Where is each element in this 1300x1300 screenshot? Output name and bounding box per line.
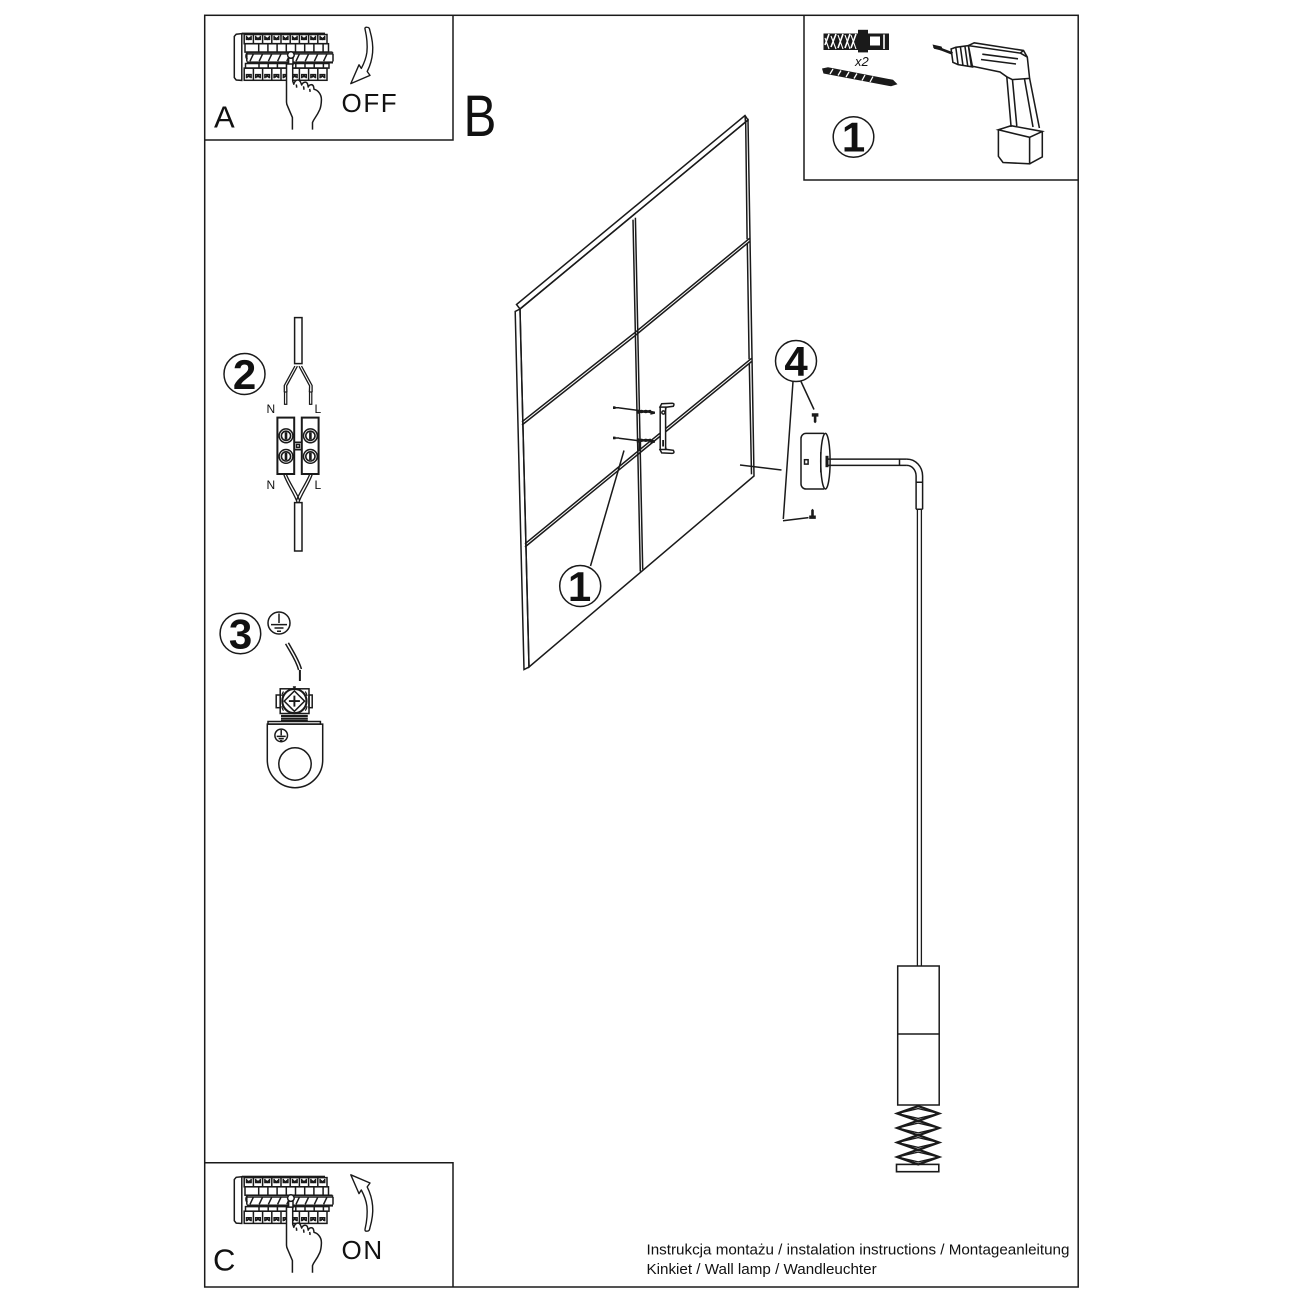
svg-text:Instrukcja montażu / instalati: Instrukcja montażu / instalation instruc… [647,1242,1070,1259]
svg-text:2: 2 [233,351,256,398]
svg-text:A: A [214,100,235,135]
svg-text:B: B [464,84,497,149]
svg-text:N: N [267,478,276,492]
svg-text:C: C [213,1243,235,1278]
svg-text:N: N [267,402,276,416]
svg-text:1: 1 [842,114,865,161]
svg-text:3: 3 [229,611,252,658]
svg-text:x2: x2 [854,54,870,69]
svg-text:4: 4 [784,338,808,385]
svg-text:OFF: OFF [342,88,399,118]
svg-text:1: 1 [568,563,591,610]
svg-text:L: L [315,478,322,492]
svg-text:Kinkiet / Wall lamp / Wandleuc: Kinkiet / Wall lamp / Wandleuchter [647,1261,877,1278]
svg-text:L: L [315,402,322,416]
svg-text:ON: ON [342,1235,384,1265]
